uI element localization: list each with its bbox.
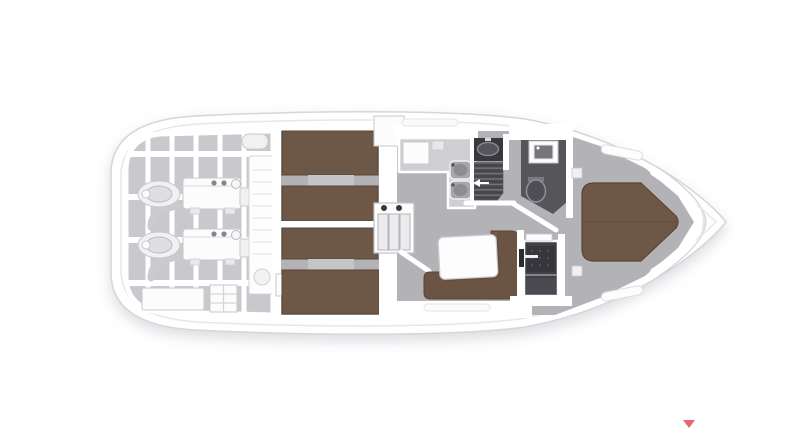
louver-cabinet	[374, 203, 414, 253]
boat-floor-plan	[0, 0, 800, 446]
shower-grate	[527, 246, 555, 272]
exhaust-cylinder	[242, 134, 268, 149]
shower-bench	[526, 278, 556, 294]
water-heater	[254, 269, 270, 285]
nightstand-bottom	[572, 266, 582, 276]
aft-cabin-starboard	[282, 228, 379, 314]
page	[0, 0, 800, 446]
berth-stbd-inner	[282, 228, 378, 259]
toilet	[527, 177, 546, 202]
nightstand-top	[572, 168, 582, 178]
head-top-wall	[509, 124, 573, 140]
berth-step	[308, 259, 354, 270]
engine-room	[124, 131, 275, 315]
shower-fwd-wall	[558, 234, 565, 300]
battery-box	[210, 285, 237, 312]
galley-sink-2	[450, 181, 471, 199]
fridge	[403, 142, 429, 164]
shower-bottom-wall	[510, 296, 572, 306]
storage-box	[142, 288, 204, 310]
cabin-divider-wall	[274, 221, 382, 228]
berth-port-outer	[282, 131, 378, 175]
deck-hatch	[402, 119, 458, 126]
dinette-table	[438, 234, 500, 281]
shower-vanity	[526, 234, 552, 241]
basin-tap	[485, 138, 491, 141]
round-basin	[478, 143, 499, 156]
companionway-steps	[249, 156, 275, 294]
galley-sink-1	[450, 161, 471, 179]
vanity-sink	[529, 141, 558, 163]
shower-stall	[510, 230, 572, 306]
berth-step	[308, 175, 354, 186]
stair-rail-left	[470, 136, 474, 204]
appliance	[432, 141, 444, 150]
stair-rail-right	[503, 134, 509, 170]
deck-hatch	[424, 304, 490, 311]
berth-stbd-outer	[282, 270, 379, 314]
berth-port-inner	[282, 186, 378, 221]
next-arrow-icon[interactable]	[683, 420, 695, 428]
